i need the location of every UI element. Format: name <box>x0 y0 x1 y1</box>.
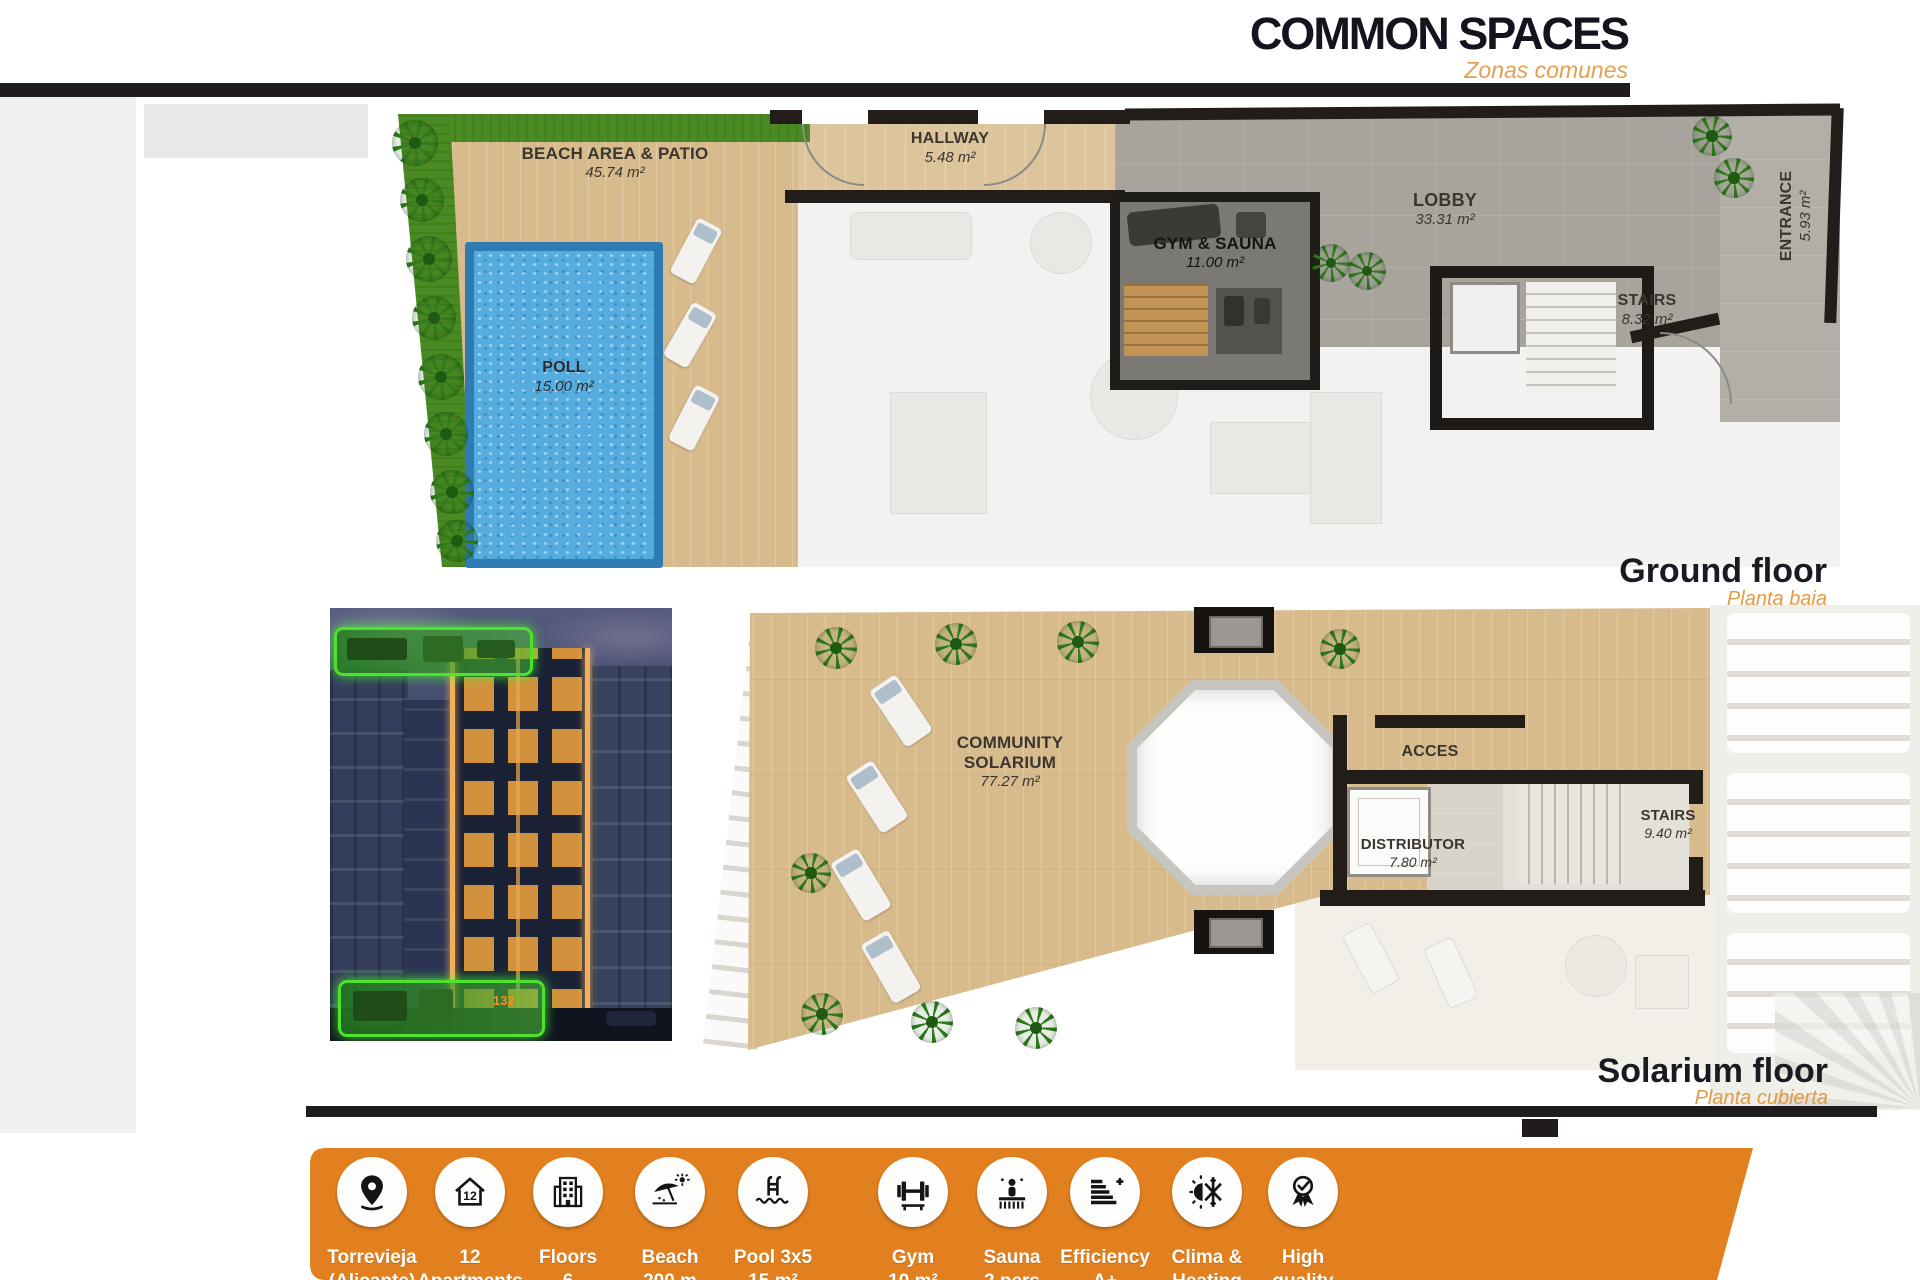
location-pin-icon <box>351 1171 393 1213</box>
feature-beach: Beach200 m <box>615 1157 725 1280</box>
beach-area-label: BEACH AREA & PATIO 45.74 m² <box>450 144 780 182</box>
ground-floor-caption: Ground floor <box>1427 552 1827 591</box>
feature-floors: Floors6 <box>513 1157 623 1280</box>
elevator <box>1450 282 1520 354</box>
community-solarium-label: COMMUNITY SOLARIUM 77.27 m² <box>935 733 1085 791</box>
feature-apartments: 12 12Apartments <box>415 1157 525 1280</box>
palm-plant <box>1312 244 1350 282</box>
hallway-bottom-wall <box>785 190 1125 203</box>
beach-icon <box>649 1171 691 1213</box>
palm-plant <box>791 853 831 893</box>
page-subtitle: Zonas comunes <box>1464 57 1628 84</box>
bottom-divider-bar <box>306 1106 1877 1117</box>
brochure-page: COMMON SPACES Zonas comunes <box>0 0 1920 1280</box>
feature-climate: Clima &Heating <box>1152 1157 1262 1280</box>
feature-torrevieja: Torrevieja(Alicante) <box>317 1157 427 1280</box>
palm-plant <box>1057 621 1099 663</box>
palm-plant <box>1320 629 1360 669</box>
highlight-box-groundfloor: 132 <box>338 980 545 1037</box>
house-count-icon: 12 <box>449 1171 491 1213</box>
gym-sauna-room <box>1110 192 1320 390</box>
hallway-label: HALLWAY 5.48 m² <box>785 130 1115 167</box>
palm-plant <box>406 236 452 282</box>
unit-number-label: 132 <box>493 993 515 1008</box>
quality-award-icon <box>1282 1171 1324 1213</box>
sauna-benches <box>1124 284 1208 356</box>
neighbor-building-right <box>592 666 672 1041</box>
grass-top-band <box>418 114 810 142</box>
left-margin-strip <box>0 97 136 1133</box>
palm-plant <box>1692 116 1732 156</box>
palm-plant <box>430 470 474 514</box>
feature-efficiency: EfficiencyA+ <box>1050 1157 1160 1280</box>
octagon-skylight <box>1127 680 1342 895</box>
roof-vent <box>1194 607 1274 653</box>
palm-plant <box>1015 1007 1057 1049</box>
solarium-floor-plan: COMMUNITY SOLARIUM 77.27 m² ACCES DISTRI… <box>735 605 1920 1115</box>
entrance-label: ENTRANCE 5.93 m² <box>1778 146 1862 286</box>
page-title: COMMON SPACES <box>1250 8 1628 60</box>
palm-plant <box>424 412 468 456</box>
ground-stairs-label: STAIRS 8.32 m² <box>1592 292 1702 329</box>
ground-floor-plan: POLL 15.00 m² BEACH AREA & PATIO 45.74 m… <box>330 92 1840 570</box>
palm-plant <box>911 1001 953 1043</box>
palm-plant <box>815 627 857 669</box>
solarium-stairs-steps <box>1517 784 1623 884</box>
building-night-photo: 132 <box>330 608 672 1041</box>
palm-plant <box>412 296 456 340</box>
palm-plant <box>418 354 464 400</box>
solarium-floor-caption: Solarium floor <box>1408 1052 1828 1091</box>
palm-plant <box>1714 158 1754 198</box>
sauna-icon <box>991 1171 1033 1213</box>
pool: POLL 15.00 m² <box>465 242 663 568</box>
palm-plant <box>436 520 478 562</box>
climate-icon <box>1186 1171 1228 1213</box>
distributor-label: DISTRIBUTOR 7.80 m² <box>1338 836 1488 870</box>
palm-plant <box>801 993 843 1035</box>
palm-plant <box>392 120 438 166</box>
pool-label: POLL 15.00 m² <box>474 359 654 396</box>
building-floors-icon <box>547 1171 589 1213</box>
palm-plant <box>1348 252 1386 290</box>
svg-text:12: 12 <box>463 1189 477 1203</box>
feature-quality: Highquality <box>1248 1157 1358 1280</box>
gym-sauna-label: GYM & SAUNA 11.00 m² <box>1130 234 1300 272</box>
parked-car <box>606 1011 656 1026</box>
feature-pool: Pool 3x515 m² <box>718 1157 828 1280</box>
solarium-stairs-label: STAIRS 9.40 m² <box>1623 807 1713 841</box>
palm-plant <box>400 178 444 222</box>
gym-icon <box>892 1171 934 1213</box>
lobby-label: LOBBY 33.31 m² <box>1370 190 1520 229</box>
divider-notch <box>1522 1119 1558 1137</box>
palm-plant <box>935 623 977 665</box>
efficiency-icon <box>1084 1171 1126 1213</box>
feature-gym: Gym10 m² <box>858 1157 968 1280</box>
roof-vent <box>1194 910 1274 954</box>
acces-label: ACCES <box>1375 743 1485 762</box>
highlight-box-solarium <box>334 627 533 676</box>
pool-icon <box>752 1171 794 1213</box>
